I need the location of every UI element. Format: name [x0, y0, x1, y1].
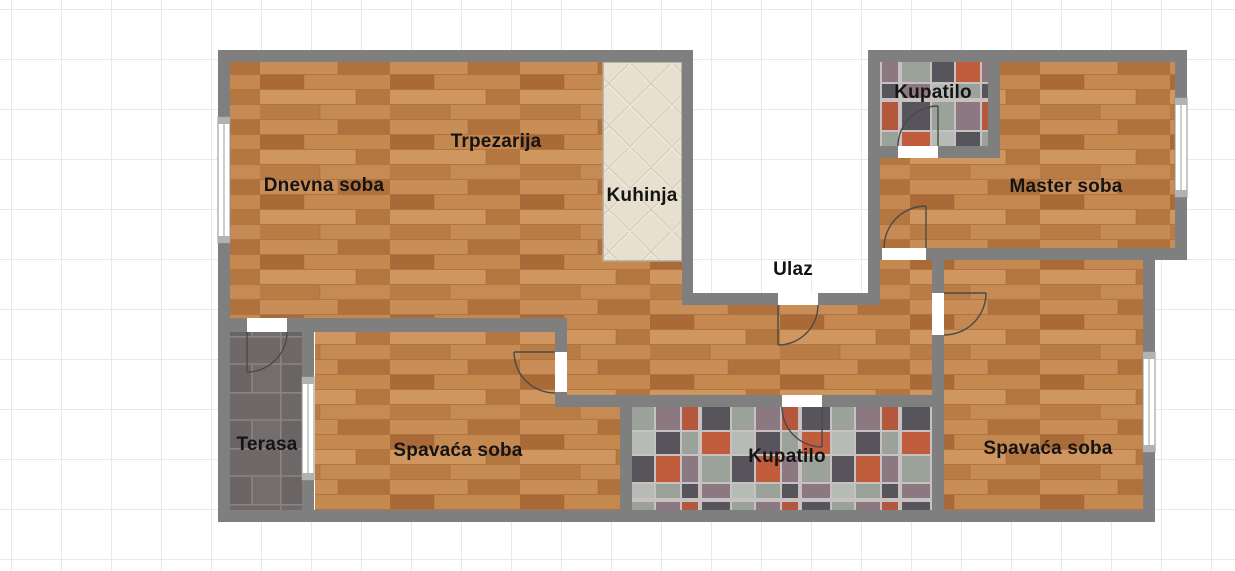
door-opening-kupatilo-donje	[782, 395, 822, 407]
door-opening-master	[882, 248, 926, 260]
room-label-spavaca-soba-2: Spavaća soba	[983, 438, 1112, 460]
door-opening-spavaca2	[932, 293, 944, 335]
room-label-kuhinja: Kuhinja	[606, 185, 677, 207]
room-label-master-soba: Master soba	[1009, 176, 1122, 198]
door-opening-ulaz	[778, 293, 818, 305]
floor-spavaca-soba-1	[315, 332, 622, 510]
room-label-kupatilo-gornje: Kupatilo	[894, 82, 972, 104]
room-label-trpezarija: Trpezarija	[451, 131, 542, 153]
wall-top-right	[868, 50, 1187, 62]
room-label-spavaca-soba-1: Spavaća soba	[393, 440, 522, 462]
wall-bottom	[218, 510, 1155, 522]
window-dnevna-soba	[218, 117, 230, 243]
wall-top-left	[218, 50, 693, 62]
floor-spavaca-soba-2	[944, 260, 1143, 510]
window-master-soba	[1175, 98, 1187, 197]
room-label-ulaz: Ulaz	[773, 259, 813, 281]
room-label-dnevna-soba: Dnevna soba	[264, 175, 384, 197]
door-opening-spavaca1	[555, 352, 567, 392]
floor-kupatilo-gornje	[880, 62, 988, 146]
room-label-terasa: Terasa	[236, 434, 297, 456]
floor-plan: Dnevna soba Trpezarija Kuhinja Ulaz Kupa…	[0, 0, 1235, 571]
wall-northeast-left	[868, 50, 880, 305]
window-spavaca-soba-2	[1143, 352, 1155, 452]
floor-plan-canvas	[0, 0, 1235, 571]
wall-kitchen-right	[682, 50, 693, 293]
room-label-kupatilo-donje: Kupatilo	[748, 446, 826, 468]
floor-kuhinja	[603, 62, 682, 261]
floor-terasa	[230, 332, 302, 510]
wall-kupatilo-gornje-right	[988, 62, 1000, 158]
door-opening-kupatilo-gornje	[898, 146, 938, 158]
wall-kupatilo-donje-left	[620, 395, 632, 510]
door-opening-terasa	[247, 318, 287, 332]
wall-kupatilo-donje-top	[555, 395, 944, 407]
window-terasa	[302, 377, 314, 480]
